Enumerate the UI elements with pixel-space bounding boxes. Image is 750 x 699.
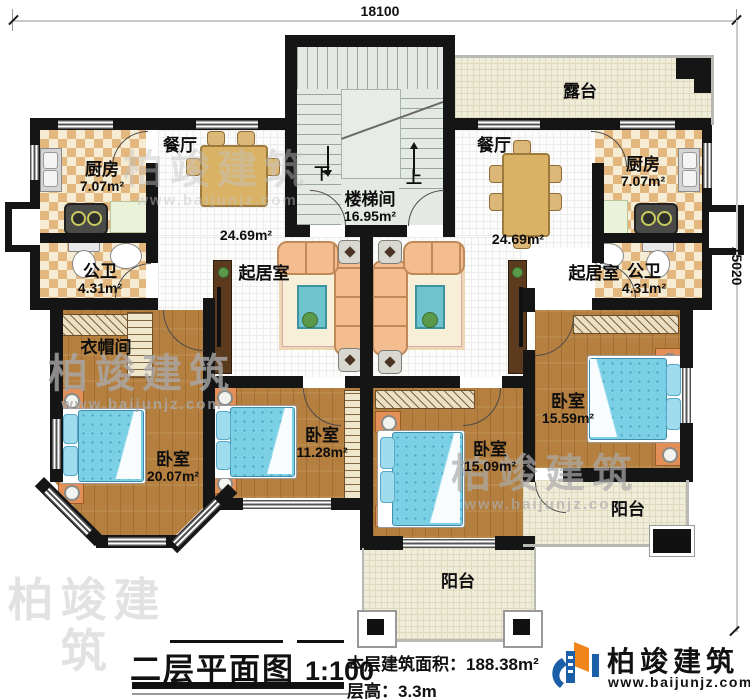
stair-direction: 下 [314,166,330,183]
window [403,539,495,548]
room-label-terrace: 露台 [540,82,620,101]
stat-label: 本层建筑面积： [347,655,466,674]
lamp-diamond-icon [384,246,395,257]
room-name: 楼梯间 [320,190,420,209]
room-label-balcony-right: 阳台 [588,500,668,519]
stat-value: 3.3m [398,682,437,699]
brand-website-text: www.baijunjz.com [608,674,750,690]
window [620,120,675,129]
room-label-bedroom-left-small: 卧室11.28m² [272,426,372,461]
dimension-value: 15020 [729,247,745,286]
balcony-column [503,610,543,648]
room-name: 餐厅 [462,136,526,155]
title-rule-thin [132,693,350,695]
room-label-bath-left: 公卫4.31m² [54,262,146,297]
room-name: 卧室 [518,392,618,411]
dining-table-right [502,153,550,237]
title-overline [297,640,344,643]
room-area: 7.07m² [52,179,152,195]
wall [443,35,455,237]
dimension-label-right: 15020 [729,241,745,291]
room-name: 露台 [540,82,620,101]
wall [680,423,693,482]
room-area: 16.95m² [320,209,420,225]
dimension-line-top [13,20,737,22]
window [703,143,712,188]
wall [373,376,460,388]
plant-decor [512,267,523,278]
window [58,120,113,129]
room-name: 阳台 [418,572,498,591]
nightstand [655,442,683,466]
room-name: 餐厅 [148,136,212,155]
window [243,500,331,509]
brand-name-text: 柏竣建筑 [607,646,739,677]
wall [331,498,365,510]
window [196,120,258,129]
stove [634,203,678,235]
bedroom-wardrobe [573,315,679,334]
burner-icon [641,211,656,226]
pillow [380,437,395,469]
wall [30,298,158,310]
room-area: 4.31m² [598,281,690,297]
wall [345,376,373,388]
dimension-slash [729,626,740,637]
pillow [63,414,78,444]
window [52,419,61,469]
lamp-diamond-icon [344,354,355,365]
room-label-dining-left: 餐厅 [148,136,212,155]
wall-lamp [378,240,402,264]
wall [285,225,310,237]
wall-lamp [338,348,362,372]
bedroom-wardrobe [375,390,475,409]
room-area: 11.28m² [272,445,372,461]
wall-lamp [338,240,362,264]
room-area: 15.59m² [518,411,618,427]
sofa [403,241,465,275]
room-label-dining-right: 餐厅 [462,136,526,155]
room-area: 15.09m² [440,459,540,475]
wall [146,243,158,263]
stove [64,203,108,235]
sofa [372,260,408,356]
lamp-icon [381,415,397,431]
dining-chair [186,158,201,176]
pillow [63,446,78,476]
room-area: 7.07m² [593,174,693,190]
room-label-kitchen-right: 厨房7.07m² [593,155,693,190]
pillow [216,411,231,440]
lamp-diamond-icon [344,246,355,257]
stat-label: 层高： [347,682,398,699]
wall [30,233,158,243]
dining-chair [237,131,255,146]
stair-treads-top [297,47,443,89]
pillow [666,364,681,396]
burner-icon [87,211,102,226]
room-label-living-right: 起居室 [552,264,636,283]
wall [592,233,712,243]
plan-title: 二层平面图1:100 [130,644,374,689]
cloakroom-wardrobe [55,314,129,336]
room-label-bedroom-master-right: 卧室15.59m² [518,392,618,427]
kitchen-counter-board [110,201,148,233]
room-name: 阳台 [588,500,668,519]
wall [592,243,604,263]
brand-logo-icon [548,636,604,692]
lamp-icon [662,447,678,463]
stair-up-arrowhead-icon [410,142,418,149]
terrace-railing [455,55,713,58]
room-name: 起居室 [222,264,306,283]
burner-icon [657,211,672,226]
wall-lamp [378,350,402,374]
tv-screen [217,287,221,347]
wall [285,35,297,237]
wall [563,468,693,482]
column-core [367,619,384,635]
window [30,145,39,180]
pillow [666,398,681,430]
pillow [380,471,395,503]
plant-decor [422,312,438,328]
wall [203,376,303,388]
room-name: 厨房 [593,155,693,174]
wall [592,298,712,310]
area-label-dining-left: 24.69m² [206,228,286,244]
lamp-icon [64,393,80,409]
window [682,368,691,423]
terrace-corner-pier [694,57,712,93]
room-name: 衣帽间 [62,338,150,357]
burner-icon [71,211,86,226]
dimension-value: 18100 [361,3,400,19]
balcony-pier [650,526,694,556]
room-area: 20.07m² [118,469,228,485]
room-label-bedroom-right-small: 卧室15.09m² [440,440,540,475]
wall [680,310,693,368]
dimension-label-top: 18100 [340,3,420,19]
floor-height-stat: 层高：3.3m [347,677,437,699]
brand-website: www.baijunjz.com [608,674,750,690]
area-label-dining-right: 24.69m² [476,232,560,248]
room-name: 卧室 [118,450,228,469]
column-core [513,619,530,635]
terrace-railing [711,55,714,125]
floor-area-stat: 本层建筑面积：188.38m² [347,650,539,675]
flue-box [5,202,40,252]
window [478,120,540,129]
wall [523,288,535,312]
room-label-stairwell: 楼梯间16.95m² [320,190,420,225]
wall [285,35,455,47]
stair-down-label: 下 [308,166,336,184]
room-area: 24.69m² [206,228,286,244]
room-label-balcony-center: 阳台 [418,572,498,591]
room-label-living-left: 起居室 [222,264,306,283]
room-label-kitchen-left: 厨房7.07m² [52,160,152,195]
room-name: 卧室 [272,426,372,445]
plant-decor [302,312,318,328]
dimension-line-right [736,20,738,632]
room-name: 起居室 [552,264,636,283]
stat-value: 188.38m² [466,655,539,674]
room-name: 厨房 [52,160,152,179]
floor-plan-canvas: 楼梯间16.95m² 下 上 露台 厨房7.07m² 厨房7.07m² 餐厅 餐… [0,0,750,699]
room-name: 公卫 [54,262,146,281]
room-label-cloakroom: 衣帽间 [62,338,150,357]
title-overline [170,640,283,643]
room-area: 24.69m² [476,232,560,248]
stair-direction: 上 [406,170,422,187]
wall [345,225,407,237]
room-name: 卧室 [440,440,540,459]
stair-up-label: 上 [400,170,428,188]
wall [495,536,535,550]
room-label-bedroom-master-left: 卧室20.07m² [118,450,228,485]
plan-title-text: 二层平面图 [130,652,295,687]
lamp-icon [217,390,233,406]
balcony-column [357,610,397,648]
wall [360,536,403,550]
window [108,537,166,546]
room-area: 4.31m² [54,281,146,297]
lamp-diamond-icon [384,356,395,367]
